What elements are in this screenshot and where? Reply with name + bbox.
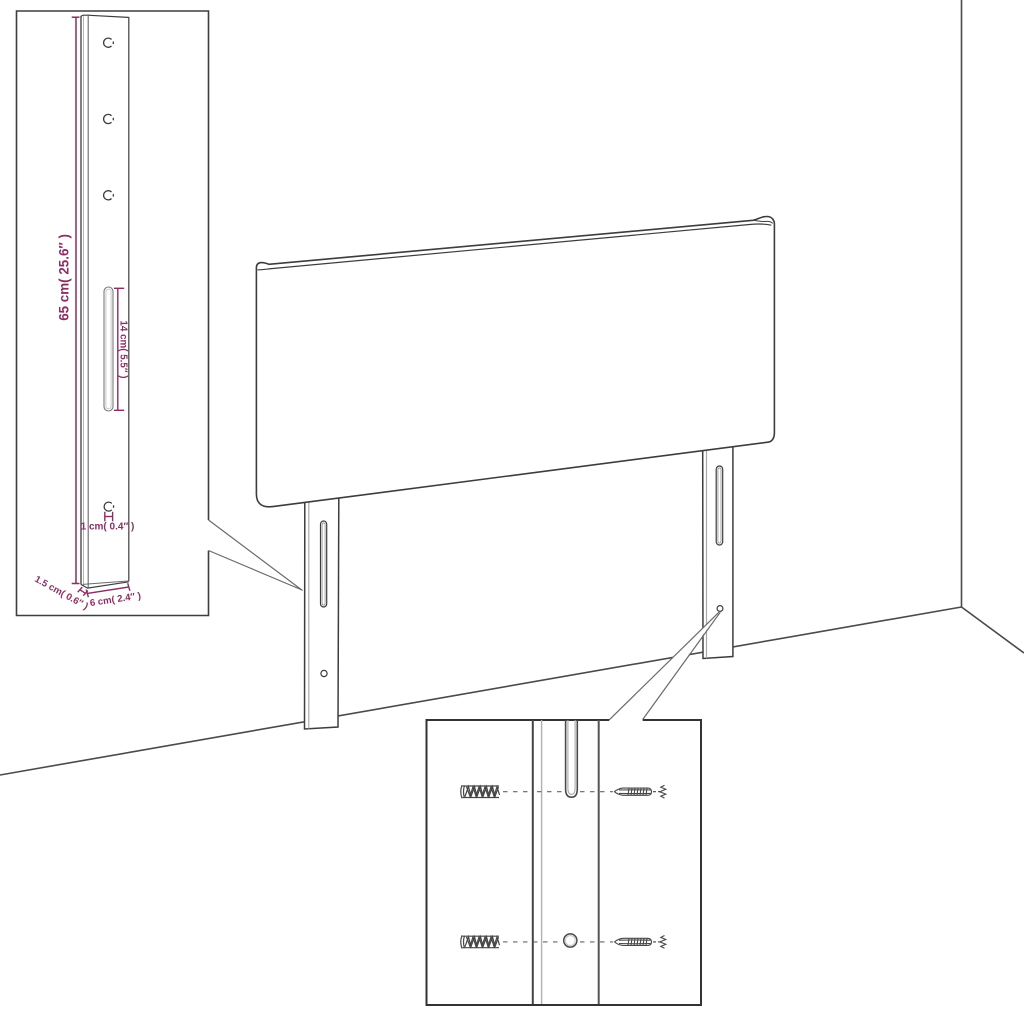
svg-text:65 cm( 25.6″ ): 65 cm( 25.6″ ) — [56, 234, 71, 321]
svg-text:1 cm( 0.4″ ): 1 cm( 0.4″ ) — [81, 522, 135, 533]
svg-text:14 cm( 5.5″ ): 14 cm( 5.5″ ) — [118, 320, 129, 378]
